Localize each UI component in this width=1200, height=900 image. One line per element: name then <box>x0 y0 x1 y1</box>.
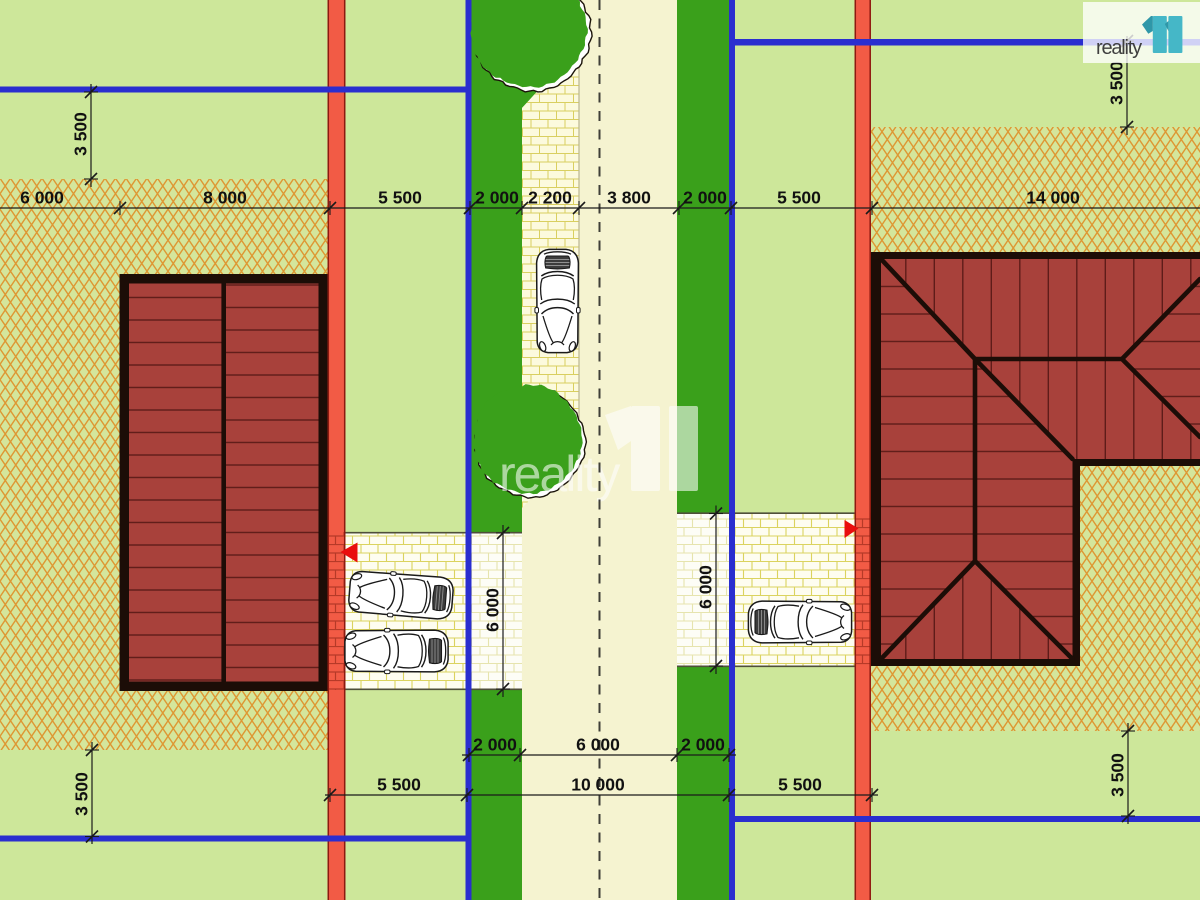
svg-text:6 000: 6 000 <box>696 565 716 609</box>
svg-text:5 500: 5 500 <box>778 775 822 795</box>
svg-text:2 000: 2 000 <box>681 735 725 755</box>
svg-text:6 000: 6 000 <box>576 735 620 755</box>
svg-text:reality: reality <box>499 446 620 502</box>
svg-text:5 500: 5 500 <box>378 188 422 208</box>
svg-text:10 000: 10 000 <box>571 775 625 795</box>
svg-text:3 500: 3 500 <box>1107 61 1127 105</box>
svg-text:2 000: 2 000 <box>473 735 517 755</box>
svg-text:reality: reality <box>1096 37 1142 59</box>
svg-text:3 800: 3 800 <box>607 188 651 208</box>
svg-text:2 200: 2 200 <box>528 188 572 208</box>
svg-text:3 500: 3 500 <box>72 772 92 816</box>
svg-text:5 500: 5 500 <box>777 188 821 208</box>
svg-text:6 000: 6 000 <box>483 588 503 632</box>
svg-text:5 500: 5 500 <box>377 775 421 795</box>
svg-text:3 500: 3 500 <box>1108 753 1128 797</box>
svg-text:2 000: 2 000 <box>683 188 727 208</box>
svg-text:8 000: 8 000 <box>203 188 247 208</box>
svg-text:3 500: 3 500 <box>71 112 91 156</box>
svg-text:14 000: 14 000 <box>1026 188 1080 208</box>
svg-text:6 000: 6 000 <box>20 188 64 208</box>
svg-text:2 000: 2 000 <box>475 188 519 208</box>
